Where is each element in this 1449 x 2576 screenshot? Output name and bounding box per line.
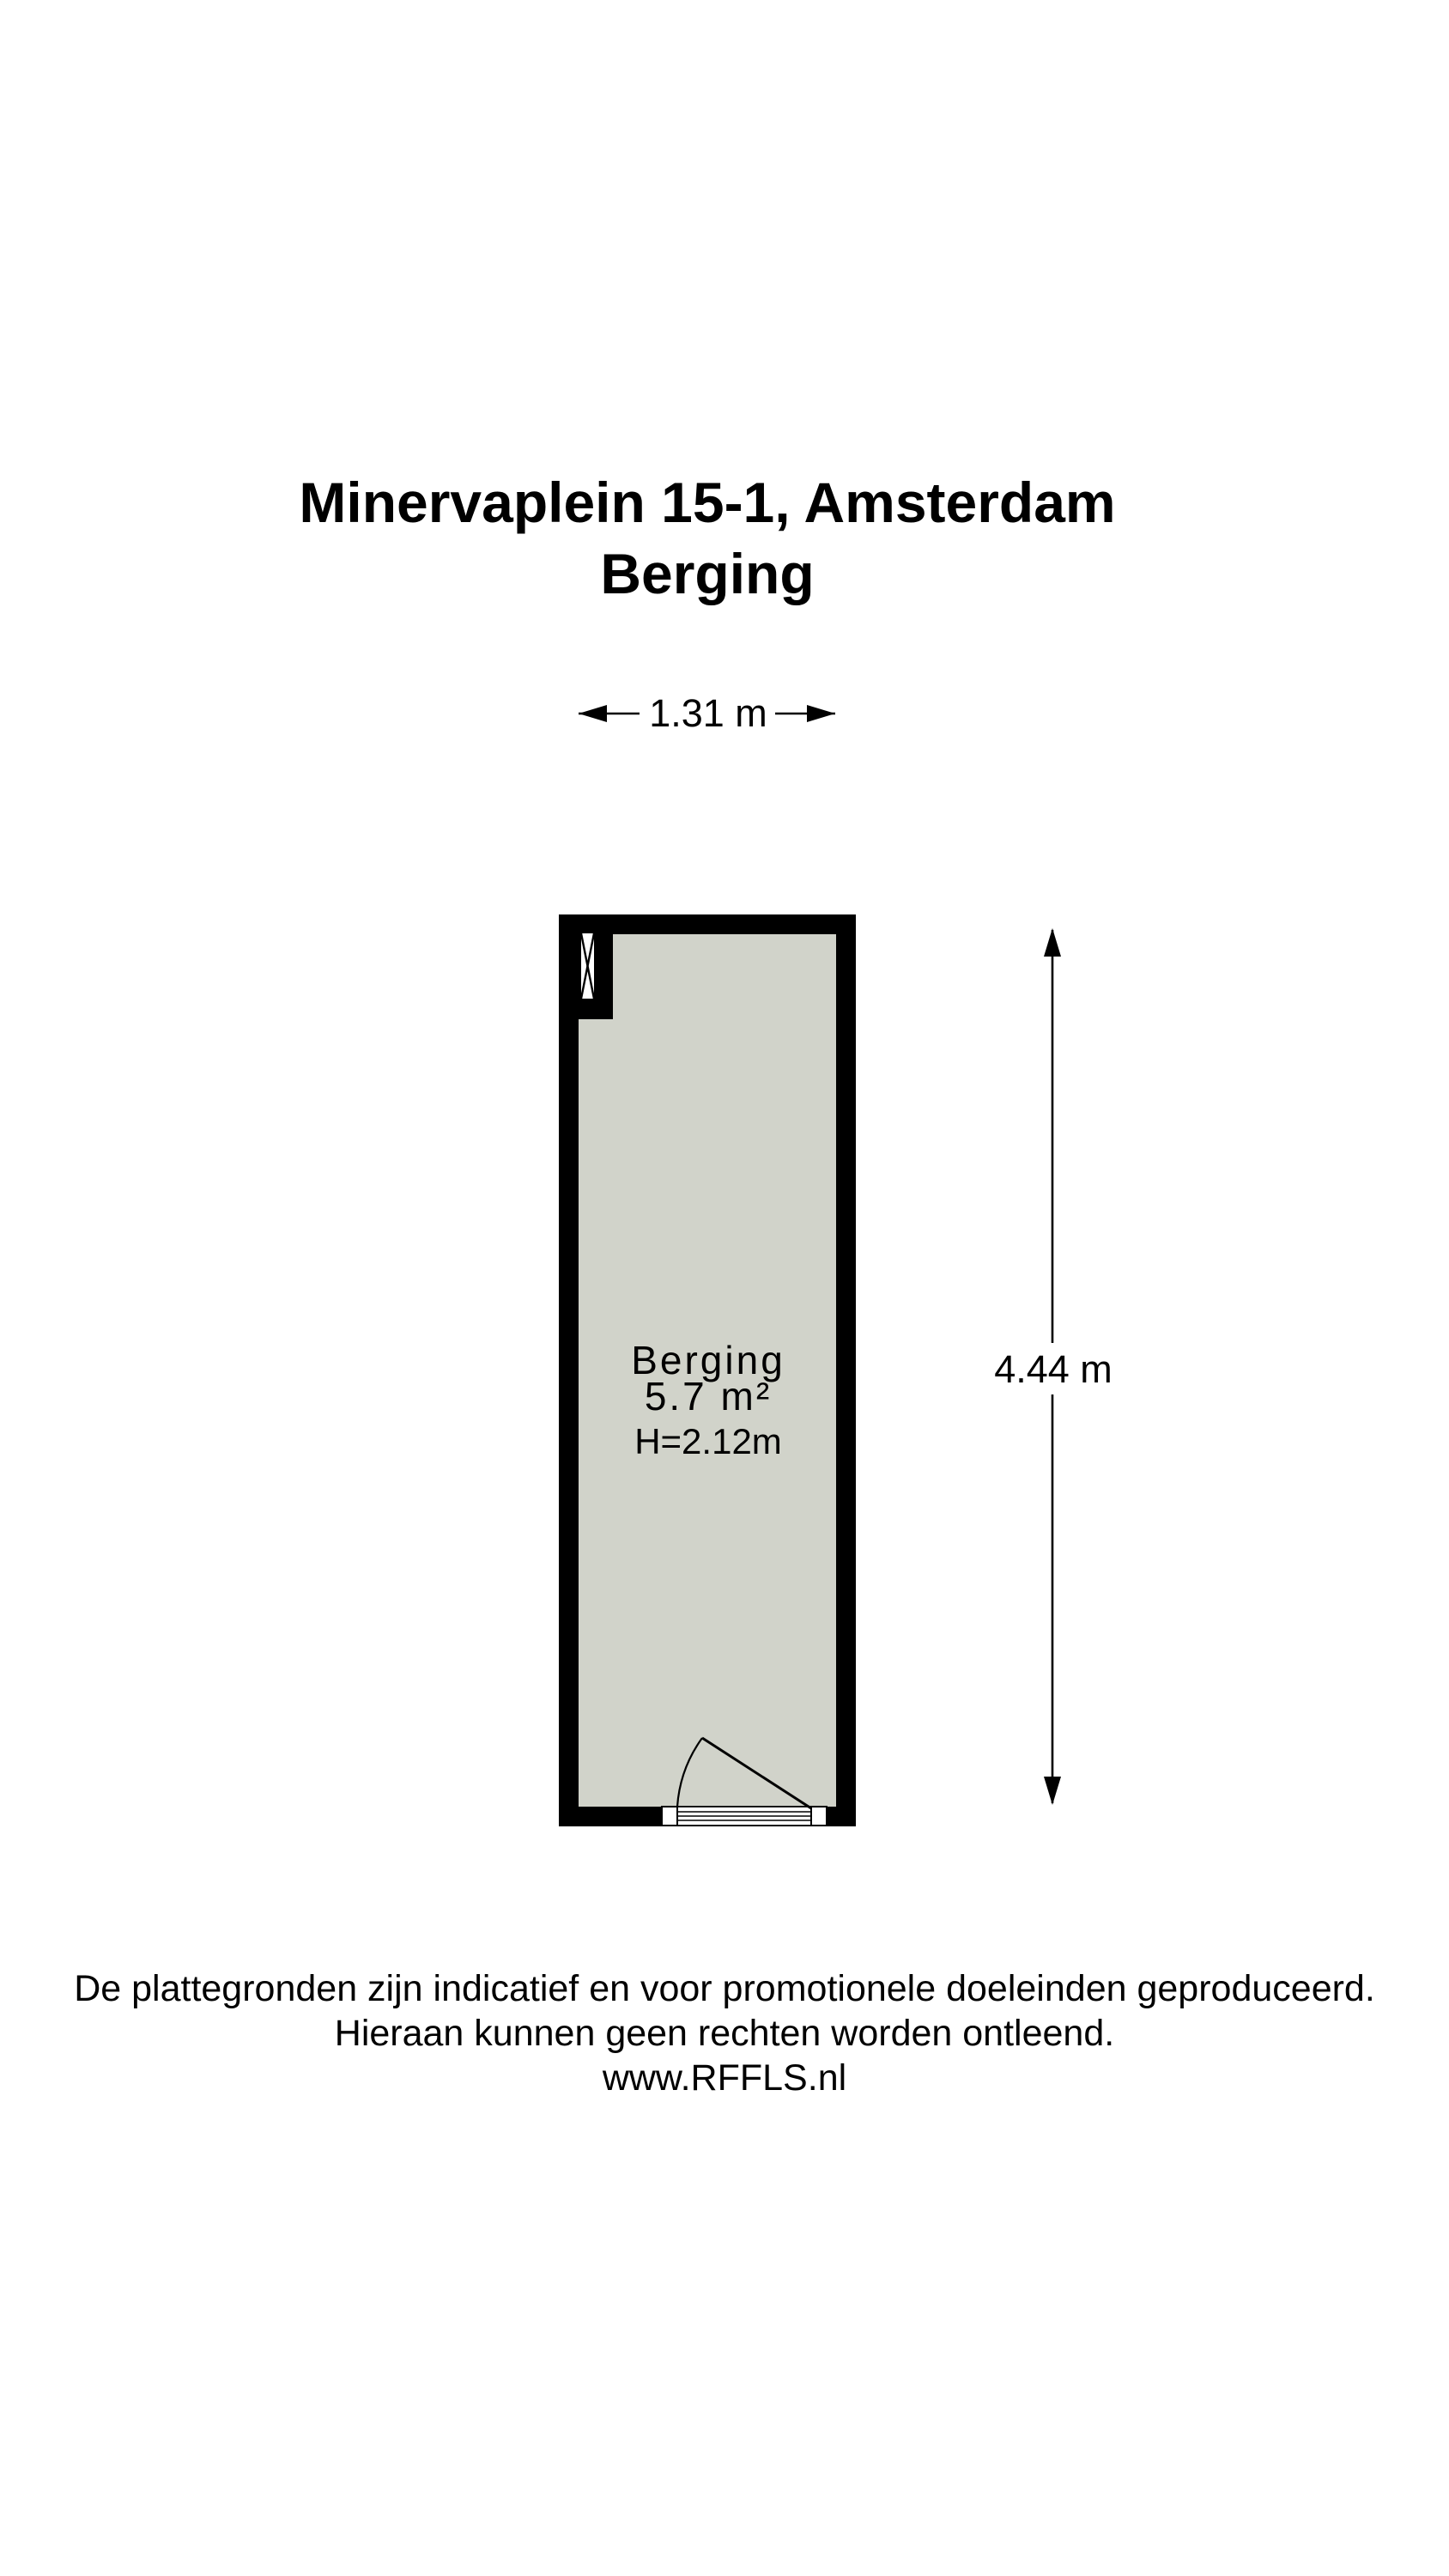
arrowhead-up-icon [1044,928,1061,957]
footer-disclaimer-line2: Hieraan kunnen geen rechten worden ontle… [0,2011,1449,2056]
shaft-block [559,914,613,1019]
arrowhead-left-icon [579,705,607,722]
height-dimension-label: 4.44 m [994,1350,1113,1388]
footer: De plattegronden zijn indicatief en voor… [0,1966,1449,2100]
door-jamb-right [811,1807,827,1826]
arrowhead-right-icon [807,705,835,722]
room-ceiling-height-label: H=2.12m [634,1424,782,1460]
footer-disclaimer-line1: De plattegronden zijn indicatief en voor… [0,1966,1449,2011]
room-area-label: 5.7 m² [645,1376,772,1416]
floorplan-drawing [0,0,1449,2576]
door-jamb-left [662,1807,677,1826]
width-dimension-label: 1.31 m [649,694,767,732]
floorplan-page: Minervaplein 15-1, Amsterdam Berging [0,0,1449,2576]
footer-website: www.RFFLS.nl [0,2056,1449,2100]
arrowhead-down-icon [1044,1777,1061,1805]
